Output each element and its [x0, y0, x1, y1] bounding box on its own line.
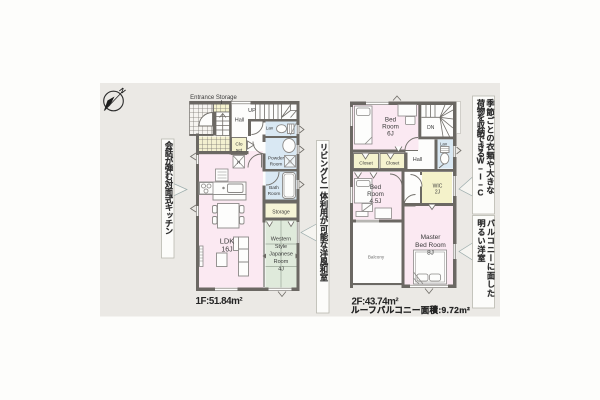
svg-text:1F:51.84m²: 1F:51.84m² [196, 296, 244, 307]
svg-text:set: set [236, 148, 243, 154]
svg-text:DN: DN [427, 125, 435, 131]
svg-text:Entrance Storage: Entrance Storage [190, 95, 237, 101]
svg-text:2J: 2J [435, 190, 441, 196]
svg-text:UP: UP [248, 108, 256, 114]
svg-text:ルーフバルコニー面積:9.72m²: ルーフバルコニー面積:9.72m² [351, 305, 470, 315]
svg-text:Lav: Lav [440, 142, 448, 147]
svg-text:Lav: Lav [266, 126, 274, 131]
svg-text:Hall: Hall [413, 157, 422, 163]
svg-text:Storage: Storage [272, 210, 290, 216]
svg-text:Style: Style [275, 244, 287, 250]
svg-text:Hall: Hall [235, 118, 244, 124]
svg-text:Bed: Bed [385, 117, 397, 124]
svg-text:Room: Room [274, 259, 289, 265]
svg-text:LDK: LDK [220, 237, 235, 246]
svg-text:Balcony: Balcony [368, 255, 385, 260]
svg-text:Powder: Powder [268, 156, 285, 162]
svg-text:Closet: Closet [386, 161, 400, 167]
svg-text:Closet: Closet [359, 161, 373, 167]
svg-text:Clo: Clo [235, 142, 243, 148]
svg-text:8J: 8J [427, 250, 434, 257]
svg-text:Western: Western [271, 237, 291, 243]
svg-text:Master: Master [421, 234, 442, 241]
svg-text:Room: Room [367, 191, 384, 198]
svg-text:Bed Room: Bed Room [415, 242, 446, 249]
svg-text:Bed: Bed [370, 184, 382, 191]
svg-text:Room: Room [268, 191, 281, 197]
svg-text:Japanese: Japanese [269, 252, 293, 258]
svg-text:Room: Room [382, 124, 399, 131]
svg-text:4J: 4J [278, 267, 284, 273]
svg-text:6J: 6J [387, 131, 394, 138]
svg-text:16J: 16J [221, 247, 232, 254]
svg-text:4.5J: 4.5J [370, 198, 382, 205]
svg-text:Bath: Bath [269, 185, 279, 191]
svg-text:Room: Room [270, 162, 283, 168]
